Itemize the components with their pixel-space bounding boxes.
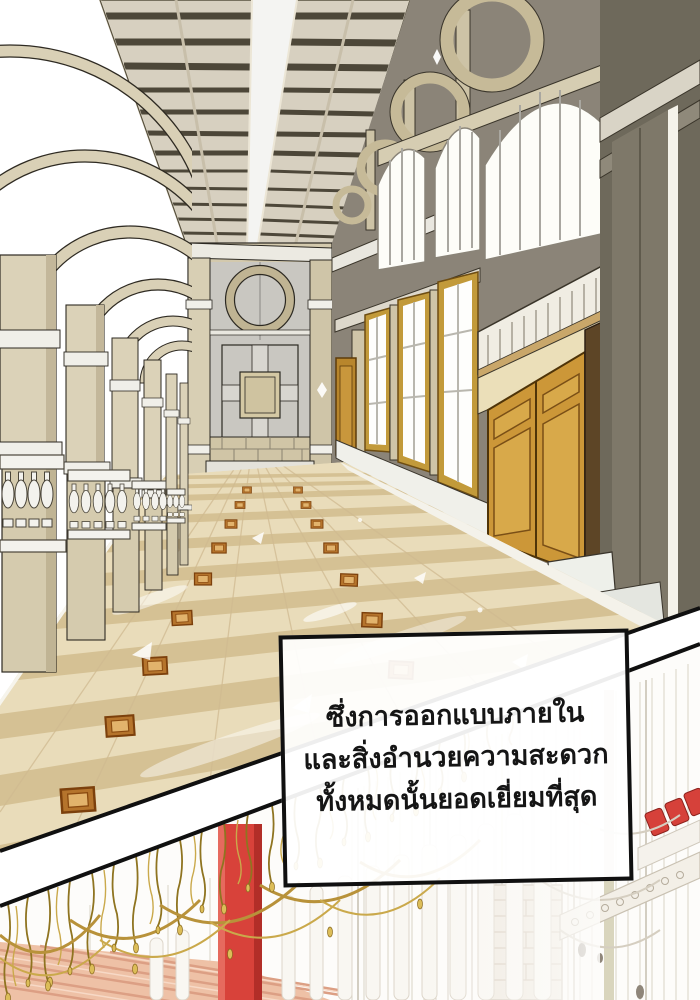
- end-wall: [186, 243, 334, 478]
- narration-line-2: และสิ่งอำนวยความสะดวก: [303, 734, 609, 782]
- rear-gold-door: [336, 358, 356, 455]
- narration-line-1: ซึ่งการออกแบบภายใน: [326, 692, 585, 739]
- wall-panel: [222, 345, 298, 445]
- narration-line-3: ทั้งหมดนั้นยอดเยี่ยมที่สุด: [316, 776, 598, 824]
- comic-page: ซึ่งการออกแบบภายใน และสิ่งอำนวยความสะดวก…: [0, 0, 700, 1000]
- narration-box: ซึ่งการออกแบบภายใน และสิ่งอำนวยความสะดวก…: [279, 629, 634, 888]
